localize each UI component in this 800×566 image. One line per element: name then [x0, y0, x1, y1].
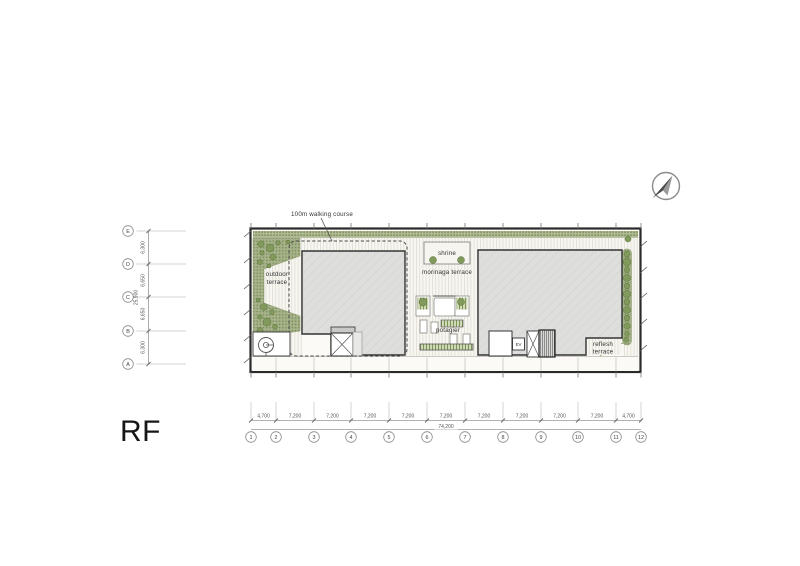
- label-potagier: potagier: [436, 327, 460, 334]
- dimension-text: 6,650: [141, 308, 147, 321]
- grid-row-label: B: [126, 329, 130, 335]
- dimension-text: 7,200: [591, 414, 604, 420]
- planter-left: [416, 296, 430, 316]
- label-reflesh-terrace: reflesh: [593, 341, 613, 348]
- potagier-box: [420, 320, 427, 333]
- dimension-text: 7,200: [289, 414, 302, 420]
- grid-column-label: 9: [540, 435, 543, 441]
- label-outdoor-terrace: terrace: [267, 279, 288, 286]
- dimension-text: 6,300: [141, 341, 147, 354]
- dimension-text: 7,200: [478, 414, 491, 420]
- grid-column-label: 11: [613, 435, 619, 441]
- dimension-text: 7,200: [553, 414, 566, 420]
- label-shrine: shrine: [438, 250, 456, 257]
- dimension-text: 7,200: [516, 414, 529, 420]
- floor-plan-drawing: 100m walking course outdoor terrace shri…: [0, 0, 800, 566]
- grid-row-label: E: [126, 229, 130, 235]
- dimension-total: 74,200: [438, 424, 454, 430]
- green-bench: [420, 344, 473, 350]
- label-morinaga-terrace: morinaga terrace: [422, 269, 472, 276]
- label-reflesh-terrace: terrace: [593, 349, 614, 356]
- table: [434, 298, 455, 316]
- dimension-text: 7,200: [364, 414, 377, 420]
- label-elevator: EV: [516, 342, 522, 347]
- dimension-text: 4,700: [622, 414, 635, 420]
- grid-column-label: 4: [350, 435, 353, 441]
- dimension-text: 6,650: [141, 274, 147, 287]
- dimension-text: 4,700: [257, 414, 270, 420]
- dimension-text: 7,200: [402, 414, 415, 420]
- grid-row-label: A: [126, 362, 130, 368]
- grid-column-label: 3: [313, 435, 316, 441]
- grid-column-label: 2: [275, 435, 278, 441]
- dimension-text: 7,200: [440, 414, 453, 420]
- stair-core: [539, 330, 555, 357]
- planter-right: [455, 296, 469, 316]
- grid-column-label: 7: [464, 435, 467, 441]
- grid-row-label: D: [126, 262, 130, 268]
- page-title: RF: [120, 415, 161, 448]
- grid-column-label: 1: [250, 435, 253, 441]
- dimension-total: 25,900: [134, 290, 140, 306]
- north-arrow-icon: [653, 173, 680, 200]
- grid-column-label: 5: [388, 435, 391, 441]
- column-grid: 1234567891011124,7007,2007,2007,2007,200…: [246, 402, 647, 442]
- grid-column-label: 6: [426, 435, 429, 441]
- label-outdoor-terrace: outdoor: [266, 271, 288, 278]
- shrine-bush: [430, 257, 437, 264]
- grid-row-label: C: [126, 295, 130, 301]
- spiral-stair: [253, 332, 290, 356]
- row-grid: EDCBA6,3006,6506,6506,30025,900: [123, 226, 186, 370]
- grid-column-label: 8: [502, 435, 505, 441]
- label-walking-course: 100m walking course: [291, 211, 353, 218]
- shrine-bush: [458, 257, 465, 264]
- grid-column-label: 12: [638, 435, 644, 441]
- dimension-text: 7,200: [326, 414, 339, 420]
- floor-plan-sheet: 100m walking course outdoor terrace shri…: [0, 0, 800, 566]
- grid-column-label: 10: [575, 435, 581, 441]
- potagier-bed: [441, 320, 463, 327]
- dimension-text: 6,300: [141, 241, 147, 254]
